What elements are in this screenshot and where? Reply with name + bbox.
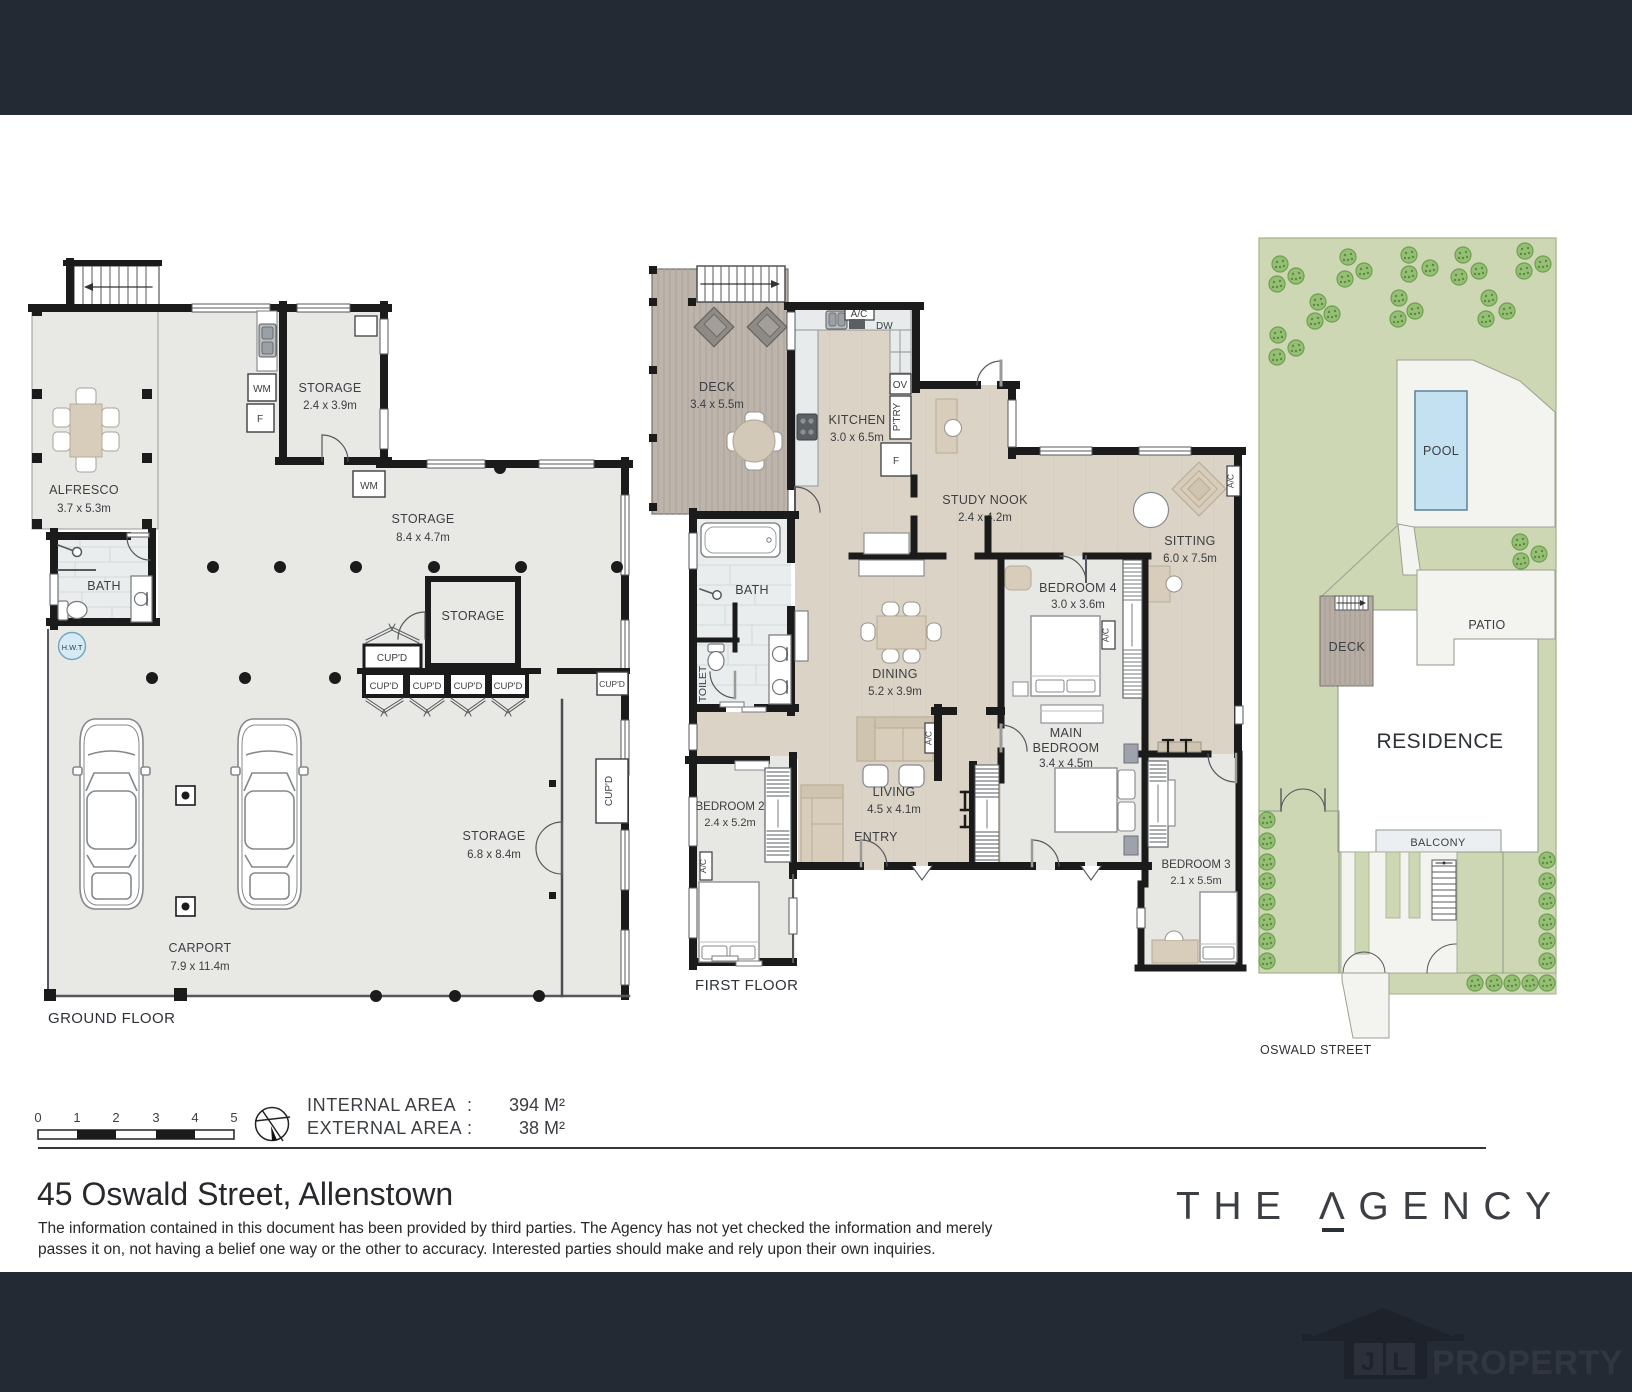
svg-text:THE ΛGENCY: THE ΛGENCY: [1176, 1185, 1565, 1228]
svg-text:A/C: A/C: [698, 859, 708, 873]
svg-text:CUP'D: CUP'D: [370, 681, 399, 692]
svg-text:BATH: BATH: [87, 579, 121, 593]
svg-text:H.W.T: H.W.T: [62, 643, 83, 652]
svg-text:3: 3: [152, 1110, 159, 1125]
svg-text:The information contained in t: The information contained in this docume…: [38, 1220, 993, 1237]
svg-text:P'TRY: P'TRY: [892, 402, 903, 431]
svg-text:45 Oswald Street, Allenstown: 45 Oswald Street, Allenstown: [37, 1176, 453, 1212]
svg-text:KITCHEN: KITCHEN: [829, 413, 886, 427]
svg-text:CUP'D: CUP'D: [454, 681, 483, 692]
svg-text:0: 0: [34, 1110, 41, 1125]
svg-text:2.4 x 5.2m: 2.4 x 5.2m: [704, 817, 755, 829]
svg-text:INTERNAL AREA: INTERNAL AREA: [307, 1095, 456, 1115]
svg-text:6.0 x 7.5m: 6.0 x 7.5m: [1163, 553, 1217, 565]
svg-text:STORAGE: STORAGE: [442, 609, 505, 623]
svg-text:3.4 x 5.5m: 3.4 x 5.5m: [690, 399, 744, 411]
svg-text:F: F: [893, 456, 899, 467]
svg-text:3.7 x 5.3m: 3.7 x 5.3m: [57, 503, 111, 515]
svg-text:STUDY NOOK: STUDY NOOK: [942, 493, 1028, 507]
svg-text:CUP'D: CUP'D: [377, 653, 407, 664]
svg-text:2.4 x 3.9m: 2.4 x 3.9m: [303, 400, 357, 412]
svg-text:DECK: DECK: [699, 380, 735, 394]
svg-text:BEDROOM 3: BEDROOM 3: [1161, 859, 1230, 871]
svg-text:CARPORT: CARPORT: [169, 941, 232, 955]
svg-text:BATH: BATH: [735, 583, 769, 597]
svg-text:8.4 x 4.7m: 8.4 x 4.7m: [396, 532, 450, 544]
svg-text:DW: DW: [876, 321, 893, 332]
svg-text:3.0 x 3.6m: 3.0 x 3.6m: [1051, 599, 1105, 611]
svg-text:A/C: A/C: [1101, 628, 1111, 642]
svg-text:DINING: DINING: [872, 667, 918, 681]
svg-text:A/C: A/C: [1226, 474, 1236, 488]
svg-text:POOL: POOL: [1423, 444, 1459, 458]
svg-text:F: F: [257, 414, 263, 425]
svg-text:BALCONY: BALCONY: [1410, 837, 1466, 849]
svg-text:STORAGE: STORAGE: [463, 829, 526, 843]
svg-text:ALFRESCO: ALFRESCO: [49, 483, 119, 497]
svg-text:BEDROOM: BEDROOM: [1033, 741, 1100, 755]
svg-text:LIVING: LIVING: [873, 785, 916, 799]
svg-text:A/C: A/C: [924, 731, 934, 745]
svg-text:WM: WM: [253, 384, 271, 395]
svg-text:1: 1: [73, 1110, 80, 1125]
svg-text:38 M²: 38 M²: [519, 1118, 565, 1138]
svg-text:CUP'D: CUP'D: [413, 681, 442, 692]
svg-text:TOILET: TOILET: [697, 665, 709, 702]
svg-text:A/C: A/C: [851, 309, 868, 320]
svg-text:7.9 x 11.4m: 7.9 x 11.4m: [170, 961, 229, 973]
svg-text:2: 2: [112, 1110, 119, 1125]
svg-text:FIRST FLOOR: FIRST FLOOR: [695, 977, 798, 994]
svg-text:OSWALD STREET: OSWALD STREET: [1260, 1043, 1372, 1057]
svg-text:5: 5: [230, 1110, 237, 1125]
svg-text:CUP'D: CUP'D: [604, 776, 615, 806]
svg-text:BEDROOM 4: BEDROOM 4: [1039, 581, 1117, 595]
svg-text:3.0 x 6.5m: 3.0 x 6.5m: [830, 432, 884, 444]
svg-text:WM: WM: [360, 481, 378, 492]
svg-text::: :: [467, 1095, 472, 1115]
svg-text:394 M²: 394 M²: [509, 1095, 565, 1115]
svg-text:6.8 x 8.4m: 6.8 x 8.4m: [467, 849, 521, 861]
svg-text:EXTERNAL AREA: EXTERNAL AREA: [307, 1118, 462, 1138]
svg-text:GROUND FLOOR: GROUND FLOOR: [48, 1010, 175, 1027]
svg-text:passes it on, not having a bel: passes it on, not having a belief one wa…: [38, 1241, 936, 1258]
svg-text:RESIDENCE: RESIDENCE: [1376, 730, 1503, 753]
svg-text:J: J: [1361, 1348, 1375, 1376]
svg-text:OV: OV: [893, 380, 908, 391]
svg-text:4: 4: [191, 1110, 198, 1125]
svg-text:SITTING: SITTING: [1164, 534, 1215, 548]
svg-text::: :: [467, 1118, 472, 1138]
svg-text:DECK: DECK: [1329, 640, 1366, 654]
svg-text:STORAGE: STORAGE: [392, 512, 455, 526]
svg-text:L: L: [1392, 1348, 1407, 1376]
svg-text:PATIO: PATIO: [1468, 618, 1505, 632]
svg-text:PROPERTY: PROPERTY: [1432, 1344, 1623, 1382]
svg-text:STORAGE: STORAGE: [299, 381, 362, 395]
svg-text:4.5 x 4.1m: 4.5 x 4.1m: [867, 804, 921, 816]
svg-text:CUP'D: CUP'D: [494, 681, 523, 692]
svg-text:CUP'D: CUP'D: [599, 679, 625, 689]
svg-text:5.2 x 3.9m: 5.2 x 3.9m: [868, 686, 922, 698]
svg-text:BEDROOM 2: BEDROOM 2: [695, 801, 764, 813]
svg-text:2.1 x 5.5m: 2.1 x 5.5m: [1170, 875, 1221, 887]
svg-text:MAIN: MAIN: [1050, 726, 1082, 740]
